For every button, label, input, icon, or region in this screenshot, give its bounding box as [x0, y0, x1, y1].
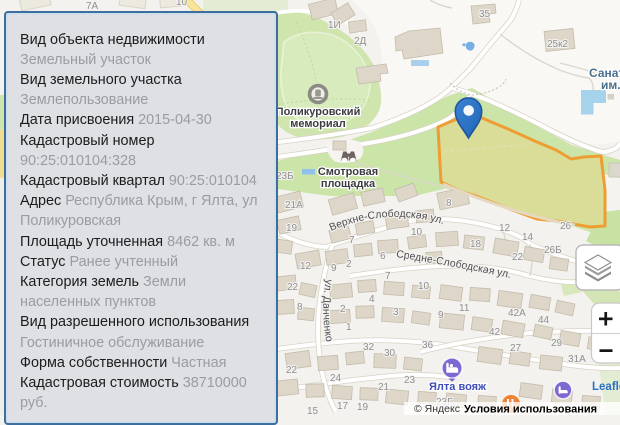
svg-text:35: 35 [479, 9, 491, 20]
svg-text:9: 9 [331, 263, 337, 274]
svg-text:22: 22 [286, 365, 298, 376]
svg-text:32: 32 [363, 342, 375, 353]
svg-text:3: 3 [393, 307, 399, 318]
svg-text:7: 7 [349, 235, 355, 246]
svg-text:21А: 21А [285, 200, 303, 211]
svg-text:21: 21 [378, 382, 390, 393]
svg-text:6: 6 [380, 251, 386, 262]
svg-text:площадка: площадка [321, 178, 376, 190]
svg-text:2: 2 [340, 304, 346, 315]
svg-text:23: 23 [404, 375, 416, 386]
svg-text:1: 1 [346, 322, 352, 333]
svg-text:42: 42 [489, 327, 501, 338]
svg-text:15: 15 [307, 406, 319, 415]
svg-text:17: 17 [337, 401, 349, 412]
svg-text:8: 8 [297, 302, 303, 313]
svg-text:25к2: 25к2 [547, 39, 568, 50]
svg-text:26: 26 [560, 221, 572, 232]
svg-text:42А: 42А [508, 308, 526, 319]
svg-text:29: 29 [551, 338, 563, 349]
svg-text:30: 30 [384, 348, 396, 359]
svg-text:Leafle: Leafle [592, 381, 620, 393]
svg-text:Условия использования: Условия использования [464, 404, 597, 416]
svg-text:31А: 31А [568, 354, 586, 365]
svg-text:36: 36 [422, 340, 434, 351]
svg-text:2Д: 2Д [354, 36, 367, 47]
svg-text:11: 11 [459, 303, 470, 314]
svg-text:23Б: 23Б [276, 171, 294, 182]
svg-text:27: 27 [510, 343, 522, 354]
svg-text:14: 14 [522, 232, 534, 243]
svg-text:26Б: 26Б [544, 245, 562, 256]
svg-text:10: 10 [176, 0, 188, 8]
svg-text:44: 44 [538, 315, 550, 326]
svg-text:Смотровая: Смотровая [318, 166, 378, 178]
svg-text:1И: 1И [328, 20, 341, 31]
svg-text:2: 2 [346, 259, 352, 270]
svg-text:4: 4 [369, 294, 375, 305]
svg-text:© Яндекс: © Яндекс [414, 403, 460, 415]
svg-text:12: 12 [499, 223, 511, 234]
svg-text:им.: им. [601, 78, 620, 92]
svg-text:24: 24 [330, 373, 342, 384]
svg-text:22: 22 [512, 252, 524, 263]
svg-text:12: 12 [300, 261, 312, 272]
svg-text:7: 7 [385, 271, 391, 282]
svg-text:19: 19 [357, 402, 369, 413]
svg-text:8: 8 [446, 198, 452, 209]
svg-text:10: 10 [411, 227, 423, 238]
svg-text:18: 18 [470, 239, 482, 250]
svg-text:19: 19 [286, 223, 298, 234]
svg-text:Ялта вояж: Ялта вояж [429, 381, 486, 393]
svg-text:Поликуровский: Поликуровский [276, 106, 361, 118]
svg-text:22: 22 [287, 282, 299, 293]
svg-text:мемориал: мемориал [290, 118, 345, 130]
svg-text:10: 10 [418, 281, 430, 292]
svg-text:9: 9 [438, 310, 444, 321]
